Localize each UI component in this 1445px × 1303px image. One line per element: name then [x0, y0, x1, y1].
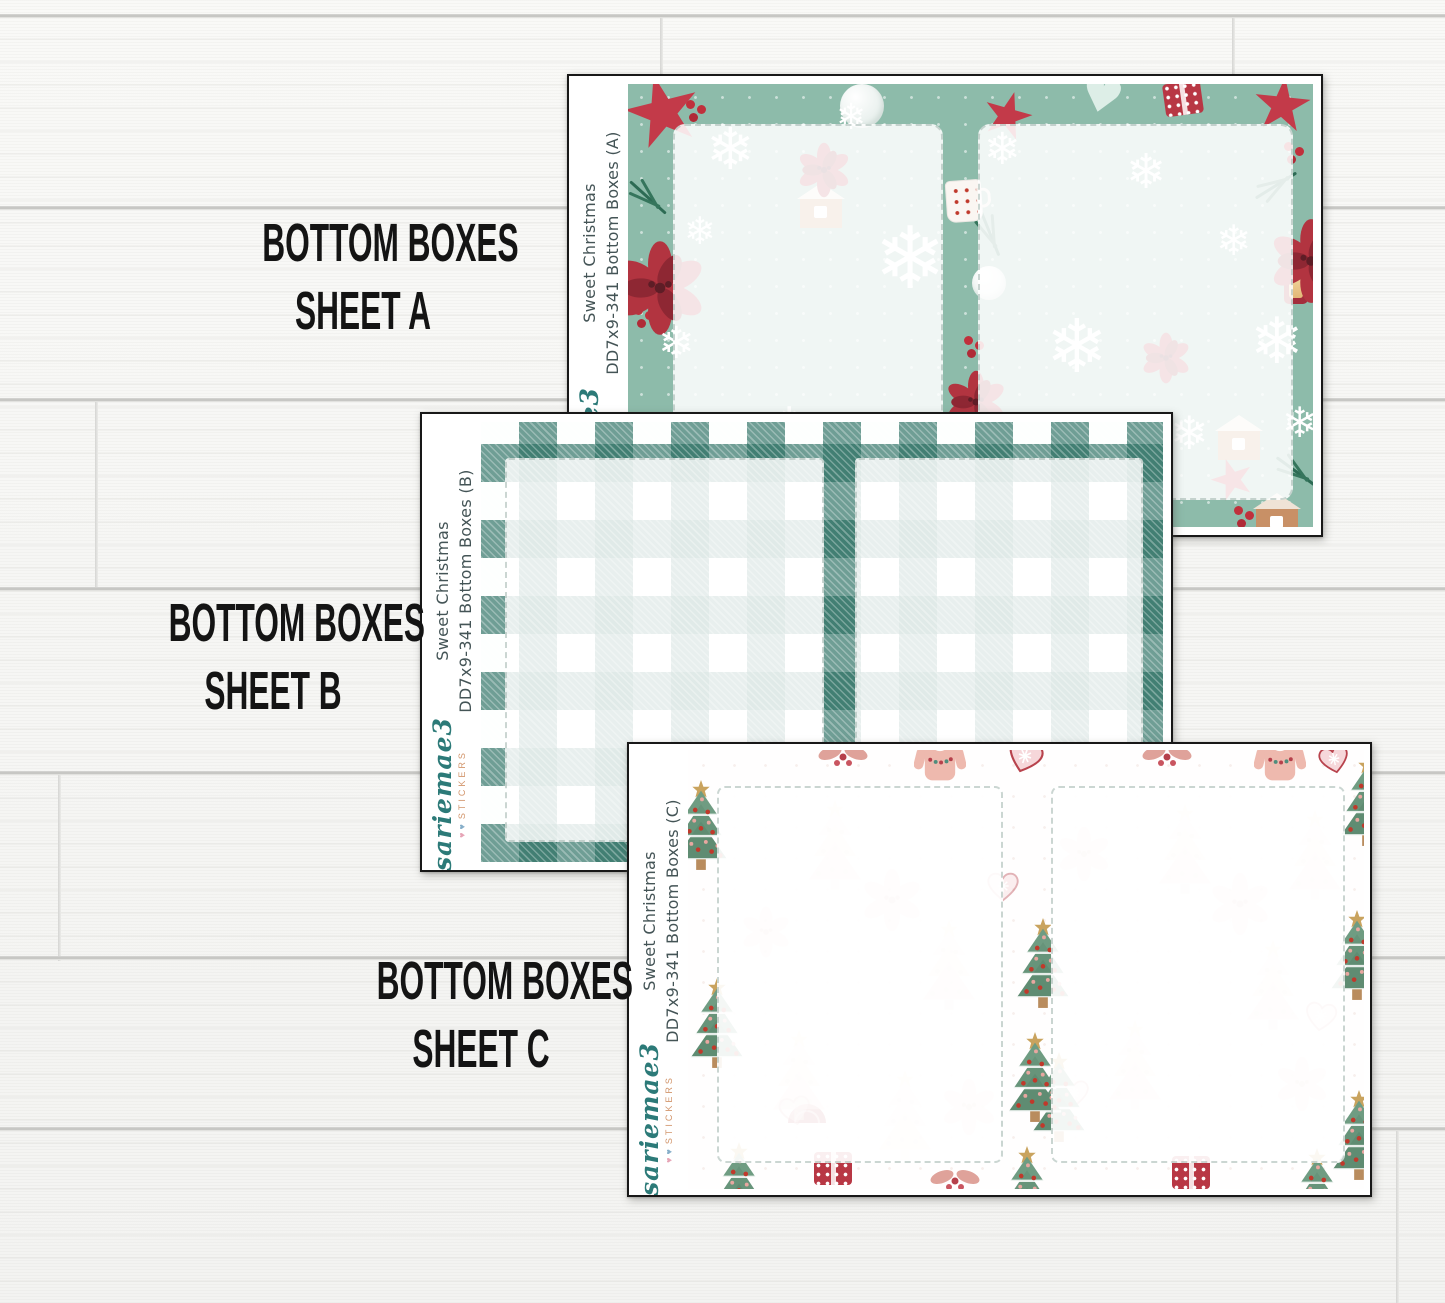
sticker-box — [717, 786, 1003, 1163]
brand-tagline: ♥♥STICKERS — [456, 714, 468, 872]
caption-line: SHEET C — [377, 1016, 586, 1084]
sweater-icon — [1254, 750, 1306, 786]
caption-line: SHEET B — [169, 658, 378, 726]
collection-title: Sweet Christmas — [431, 421, 454, 761]
sticker-box — [1051, 786, 1345, 1163]
sweater-icon — [914, 750, 966, 786]
wood-plank-seam — [95, 398, 98, 588]
wood-plank-seam — [58, 771, 61, 961]
wood-plank-seam — [1396, 1127, 1399, 1303]
wood-plank-gap — [0, 14, 1445, 18]
holly-icon — [928, 1166, 982, 1189]
brand-tagline-text: STICKERS — [457, 750, 467, 819]
caption-line: BOTTOM BOXES — [169, 590, 378, 658]
sticker-sheet-c: Sweet Christmas DD7x9-341 Bottom Boxes (… — [627, 742, 1372, 1197]
sheet-side-text: Sweet Christmas DD7x9-341 Bottom Boxes (… — [431, 421, 481, 761]
holly-icon — [1140, 750, 1194, 770]
gingerbread-house-icon — [1256, 508, 1298, 527]
caption-line: BOTTOM BOXES — [262, 210, 464, 278]
wood-background: BOTTOM BOXES SHEET A BOTTOM BOXES SHEET … — [0, 0, 1445, 1303]
sku-text: DD7x9-341 Bottom Boxes (A) — [601, 83, 624, 423]
heart-icon: ♥ — [664, 1158, 674, 1163]
heart-icon: ♥ — [664, 1149, 674, 1154]
pine-sprig-icon — [629, 180, 667, 214]
christmas-tree-icon — [998, 1144, 1056, 1189]
caption-line: SHEET A — [262, 278, 464, 346]
heart-icon: ♥ — [457, 824, 467, 829]
caption-sheet-c: BOTTOM BOXES SHEET C — [336, 960, 626, 1072]
caption-line: BOTTOM BOXES — [377, 948, 586, 1016]
brand-logo: sariemae3 ♥♥STICKERS — [636, 1039, 682, 1197]
holly-icon — [816, 750, 870, 770]
brand-tagline-text: STICKERS — [664, 1075, 674, 1144]
sku-text: DD7x9-341 Bottom Boxes (B) — [454, 421, 477, 761]
heart-icon: ♥ — [1075, 84, 1128, 124]
heart-icon: ♥ — [457, 833, 467, 838]
sheet-side-text: Sweet Christmas DD7x9-341 Bottom Boxes (… — [578, 83, 628, 423]
brand-name: sariemae3 — [429, 714, 456, 872]
heart-cookie-icon — [999, 750, 1051, 782]
berries-icon — [964, 336, 973, 345]
collection-title: Sweet Christmas — [578, 83, 601, 423]
brand-tagline: ♥♥STICKERS — [663, 1039, 675, 1197]
caption-sheet-b: BOTTOM BOXES SHEET B — [128, 602, 418, 714]
caption-sheet-a: BOTTOM BOXES SHEET A — [223, 222, 503, 334]
brand-name: sariemae3 — [636, 1039, 663, 1197]
brand-logo: sariemae3 ♥♥STICKERS — [429, 714, 475, 872]
pattern-area-trees — [688, 750, 1364, 1189]
gift-icon — [1162, 84, 1204, 117]
